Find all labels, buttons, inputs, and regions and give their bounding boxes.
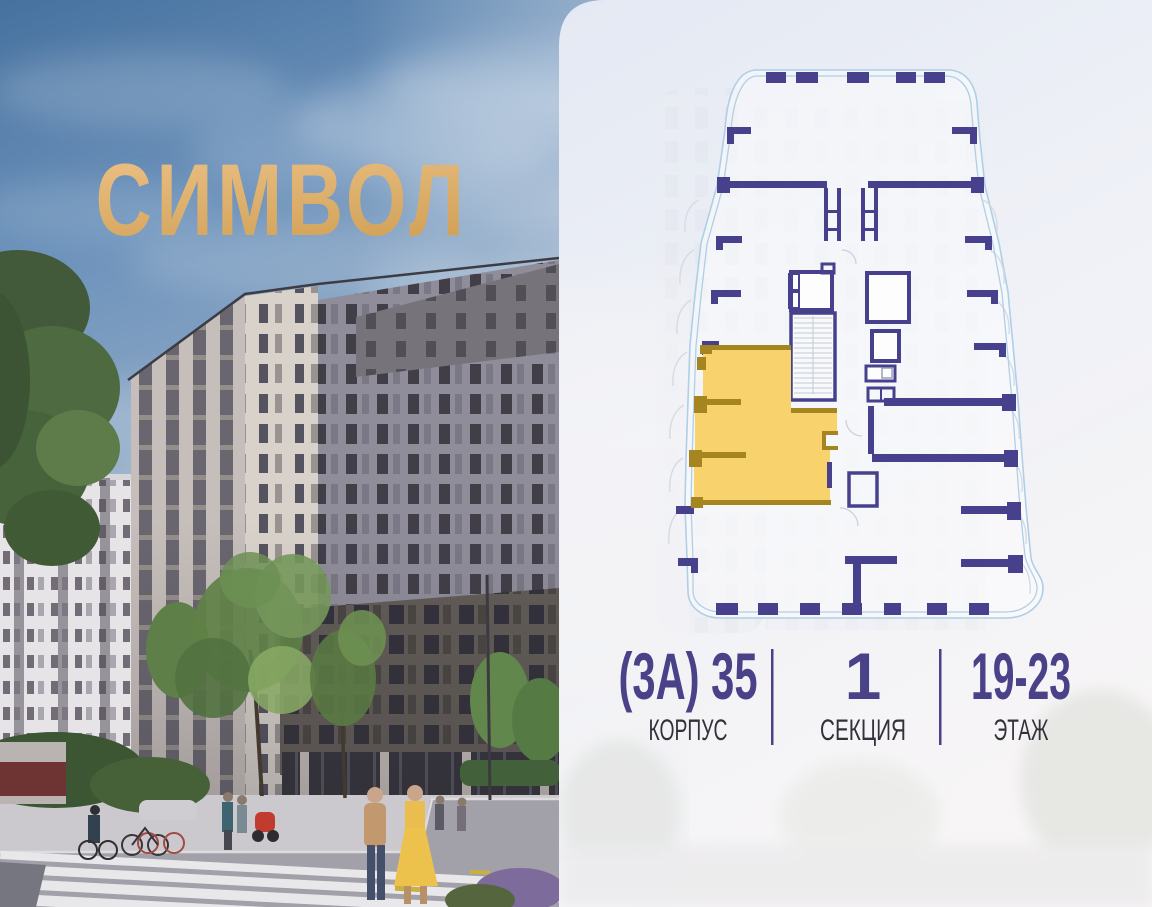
svg-text:1: 1	[845, 639, 882, 713]
svg-text:ЭТАЖ: ЭТАЖ	[994, 714, 1049, 747]
svg-text:19-23: 19-23	[971, 639, 1071, 713]
svg-text:СЕКЦИЯ: СЕКЦИЯ	[820, 714, 906, 747]
svg-text:КОРПУС: КОРПУС	[649, 714, 728, 747]
svg-text:(3А) 35: (3А) 35	[619, 639, 758, 713]
svg-text:СИМВОЛ: СИМВОЛ	[96, 143, 469, 257]
